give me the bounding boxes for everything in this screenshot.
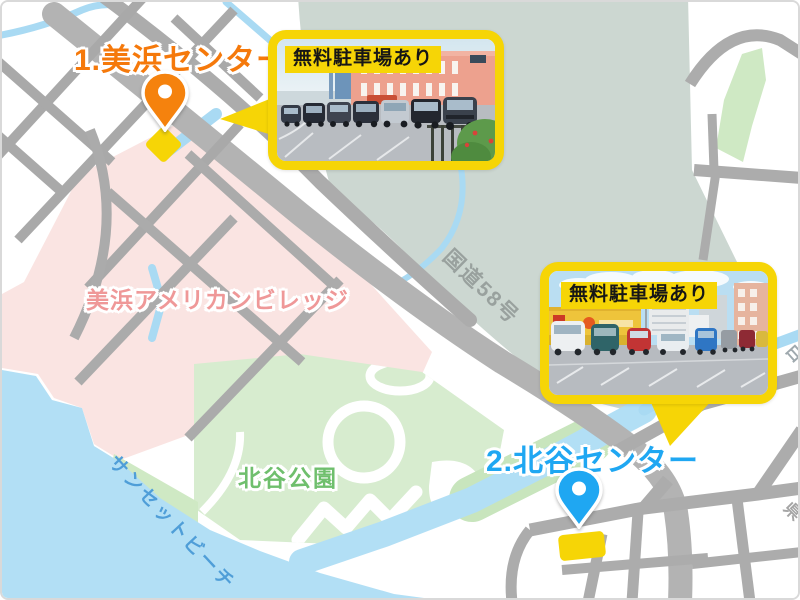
label-chatan-park: 北谷公園 [238, 459, 338, 493]
free-parking-badge: 無料駐車場あり [561, 282, 717, 309]
mihama-center-pin[interactable] [137, 66, 193, 132]
mihama-parking-callout[interactable]: 無料駐車場あり [268, 30, 504, 170]
chatan-access-map: 美浜アメリカンビレッジ 北谷公園 サンセットビーチ 国道58号 白 県 1.美浜… [0, 0, 800, 600]
free-parking-badge: 無料駐車場あり [285, 46, 441, 73]
yellow-rect-icon [558, 531, 606, 562]
chatan-parking-callout[interactable]: 無料駐車場あり [540, 262, 777, 404]
chatan-center-pin[interactable] [551, 463, 607, 529]
label-american-village: 美浜アメリカンビレッジ [86, 281, 349, 315]
